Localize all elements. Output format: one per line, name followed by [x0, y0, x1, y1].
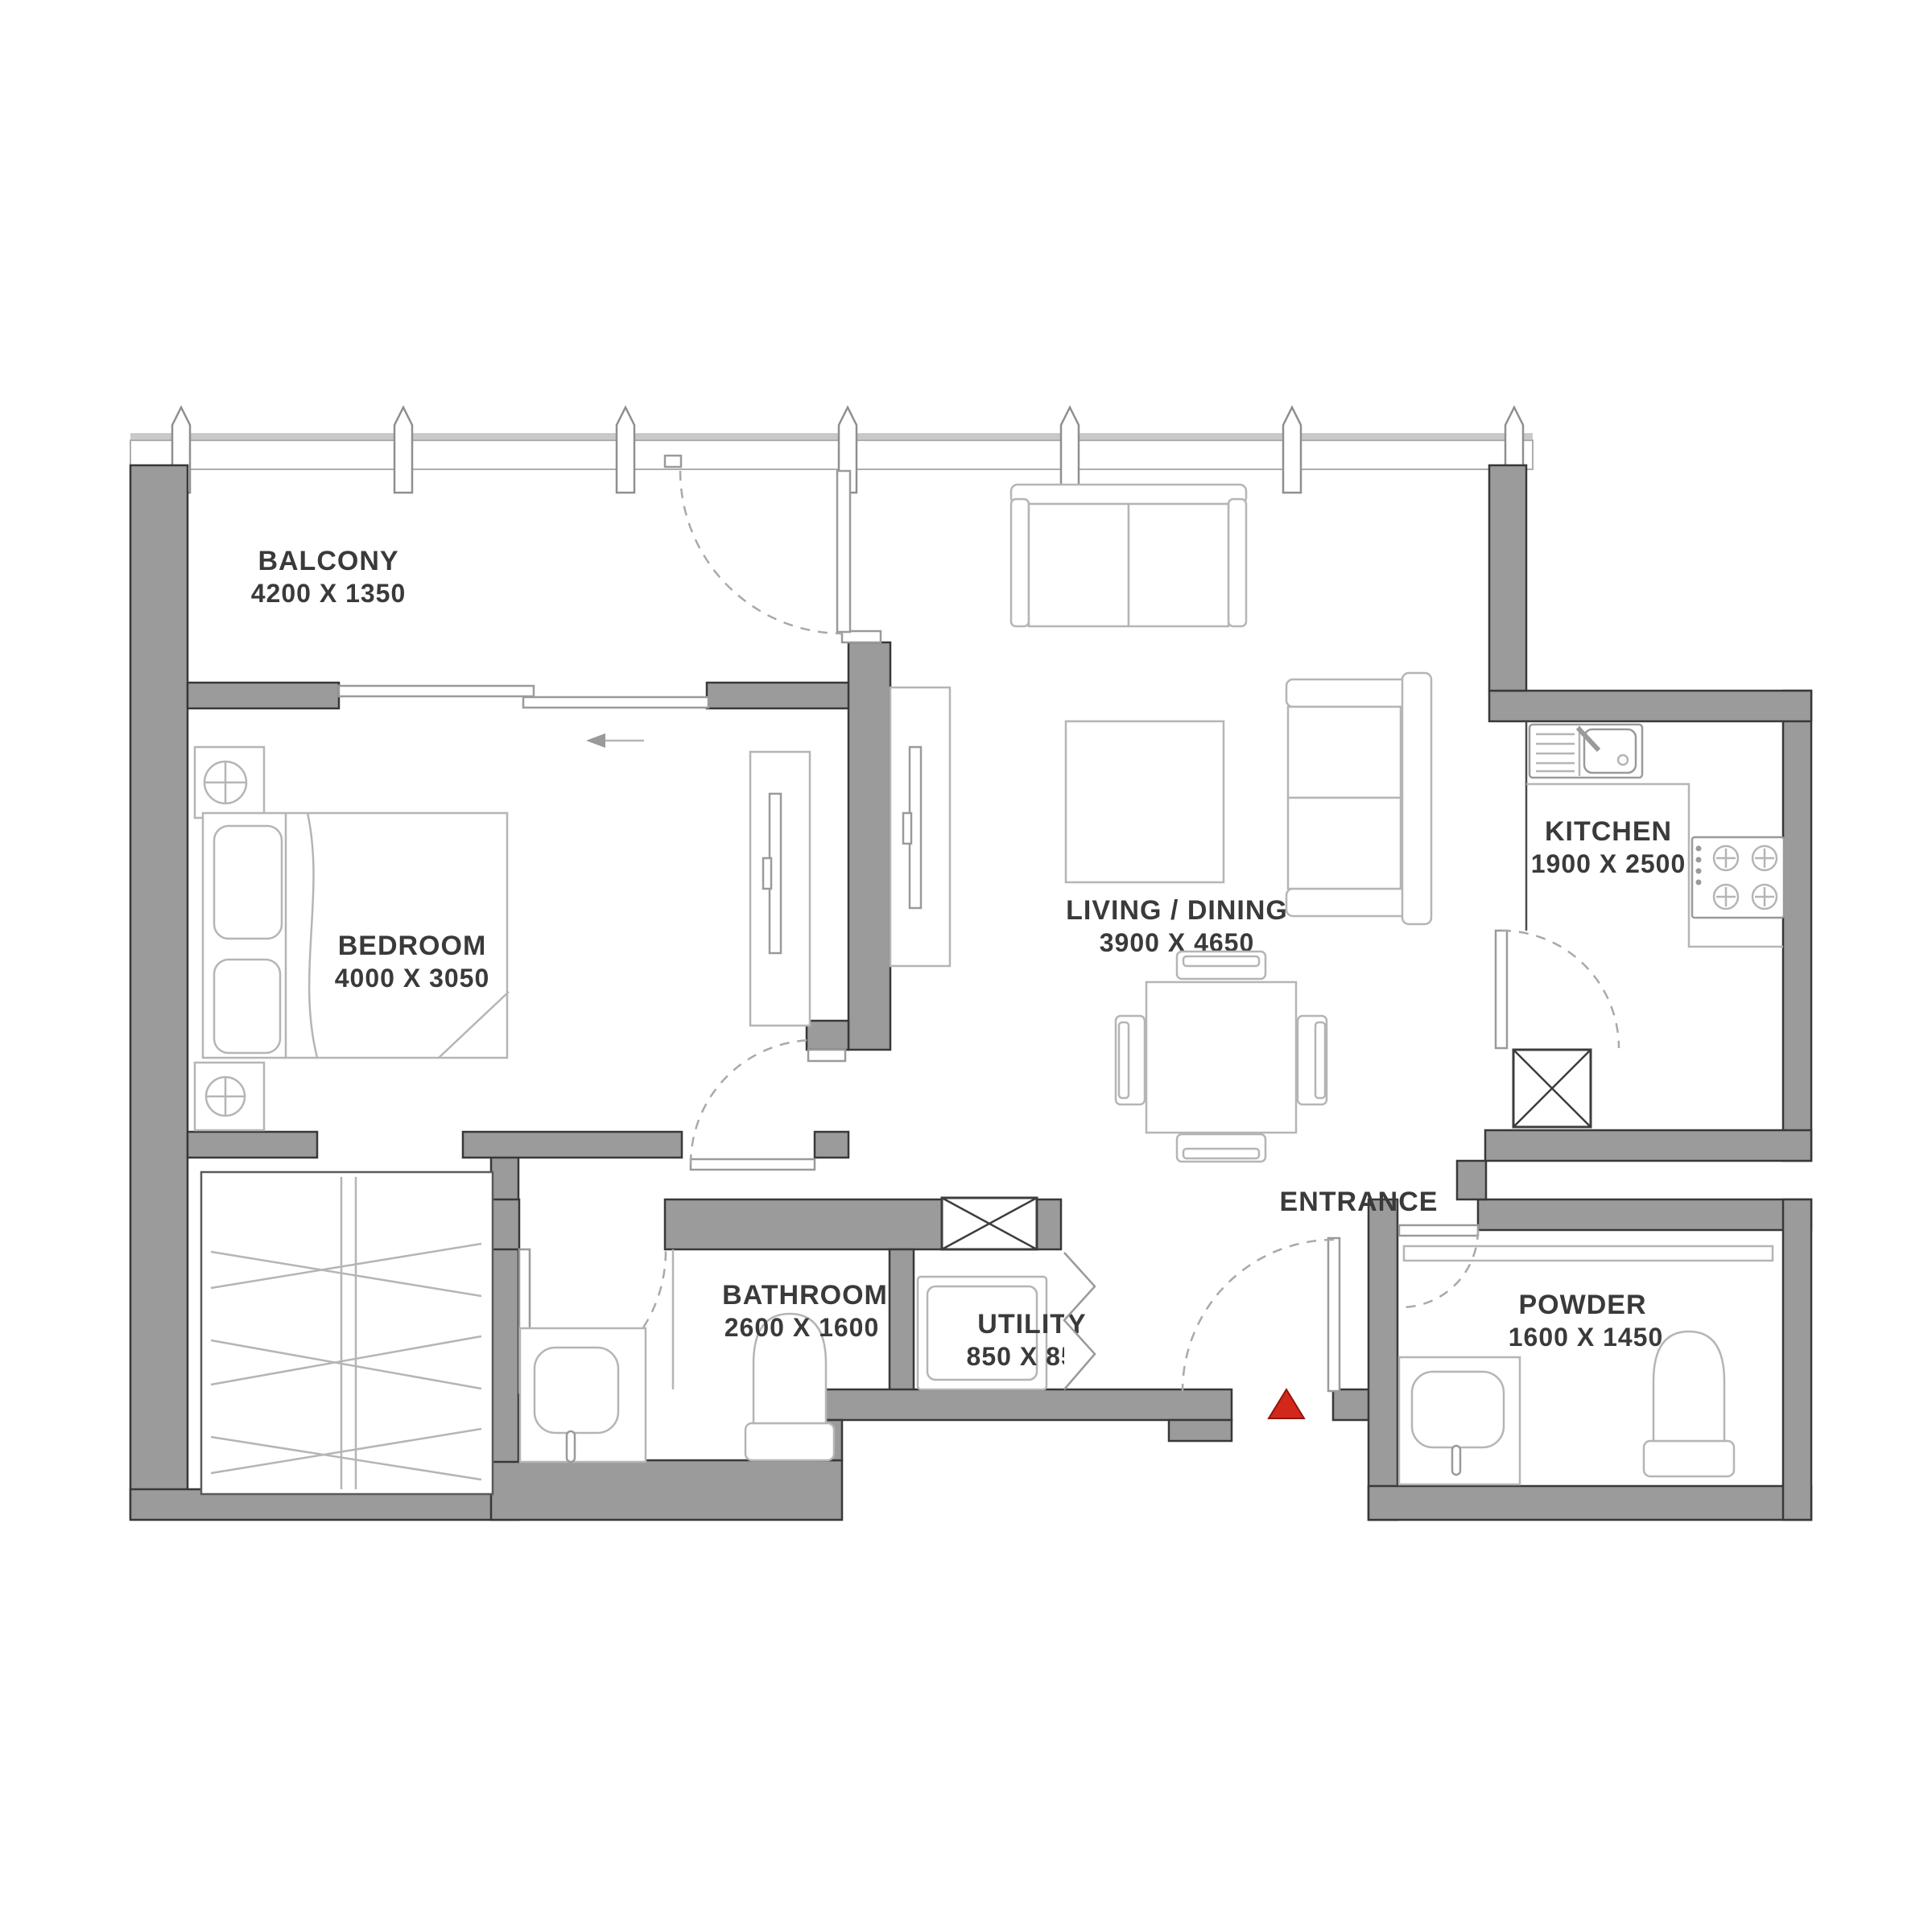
living-dining-label: LIVING / DINING: [1066, 895, 1288, 926]
tap-icon: [567, 1431, 575, 1462]
wall-segment: [1783, 691, 1811, 1161]
door-arc: [680, 471, 843, 634]
sofa-cushion: [1029, 504, 1129, 626]
powder-dimensions: 1600 X 1450: [1509, 1323, 1664, 1352]
sofa-back: [1011, 485, 1246, 504]
sofa-back: [1402, 673, 1431, 924]
sofa-cushion: [1288, 798, 1401, 889]
entrance-label: ENTRANCE: [1280, 1187, 1439, 1217]
nightstand-icon: [195, 747, 264, 818]
powder-label: POWDER: [1519, 1290, 1647, 1320]
shaft-icon: [942, 1198, 1037, 1249]
door-arc: [691, 1040, 815, 1164]
wall-segment: [188, 1132, 317, 1158]
tap-icon: [1452, 1446, 1460, 1475]
door-leaf: [1328, 1238, 1340, 1391]
entrance-door-swing-icon: [1183, 1238, 1340, 1391]
kitchen-label: KITCHEN: [1545, 816, 1672, 847]
wall-segment: [491, 1199, 519, 1249]
sofa-arm: [1011, 499, 1029, 626]
wall-segment: [1478, 1199, 1811, 1230]
wardrobe-box: [201, 1172, 493, 1494]
tv-unit-icon: [750, 752, 810, 1026]
wall-segment: [707, 683, 850, 708]
wall-segment: [815, 1132, 848, 1158]
dining-table: [1146, 982, 1296, 1133]
wall-segment: [1489, 465, 1526, 691]
door-arc: [1183, 1240, 1334, 1391]
dining-chair-back: [1119, 1022, 1129, 1098]
toilet-tank: [1644, 1441, 1734, 1476]
tv-bracket: [903, 813, 911, 844]
rug-icon: [1066, 721, 1224, 882]
room-living-dining: LIVING / DINING 3900 X 4650: [890, 485, 1431, 1162]
room-bathroom: BATHROOM 2600 X 1600: [519, 1249, 888, 1462]
room-kitchen: KITCHEN 1900 X 2500: [1496, 721, 1784, 1048]
powder-door-swing-icon: [1399, 1225, 1478, 1307]
wall-segment: [813, 1389, 1232, 1420]
stove-knob: [1696, 846, 1702, 852]
nightstand-icon: [195, 1063, 264, 1130]
balcony-railing: [130, 407, 1533, 493]
door-threshold: [665, 456, 681, 467]
wall-segment: [1783, 1199, 1811, 1520]
wardrobe-icon: [201, 1172, 493, 1494]
toilet-bowl: [1653, 1331, 1724, 1441]
dining-chair-back: [1183, 956, 1259, 966]
door-threshold: [808, 1050, 845, 1061]
kitchen-sink-icon: [1529, 724, 1642, 778]
door-arc: [1401, 1230, 1478, 1307]
sliding-panel: [523, 697, 708, 708]
door-leaf: [837, 471, 850, 632]
wall-segment: [1457, 1161, 1486, 1199]
sofa-arm: [1286, 679, 1409, 707]
wall-segment: [1485, 1130, 1811, 1161]
railing-band: [130, 440, 1533, 469]
sink-icon: [1399, 1357, 1520, 1484]
sliding-panel: [339, 686, 534, 696]
bathroom-label: BATHROOM: [722, 1280, 888, 1311]
slide-arrowhead: [586, 733, 605, 748]
wall-segment: [890, 1249, 914, 1391]
tv-unit-icon: [890, 687, 950, 966]
toilet-icon: [1644, 1331, 1734, 1476]
balcony-door-swing-icon: [680, 471, 850, 634]
sofa-icon: [1011, 485, 1246, 626]
kitchen-door-swing-icon: [1496, 931, 1619, 1048]
floor-plan: BALCONY 4200 X 1350: [0, 0, 1932, 1932]
wall-segment: [463, 1132, 682, 1158]
wall-segment: [130, 465, 188, 1518]
sofa-cushion: [1129, 504, 1228, 626]
door-leaf: [1496, 931, 1507, 1048]
dining-chair-back: [1183, 1149, 1259, 1158]
railing-post-icon: [617, 407, 634, 493]
pillow: [214, 826, 282, 939]
stove-knob: [1696, 869, 1702, 874]
sink-icon: [520, 1328, 646, 1462]
loveseat-icon: [1286, 673, 1431, 924]
wall-segment: [848, 642, 890, 1050]
balcony-dimensions: 4200 X 1350: [251, 579, 407, 608]
bedroom-door-swing-icon: [691, 1040, 815, 1170]
sofa-arm: [1286, 889, 1409, 916]
entrance-marker-icon: [1269, 1389, 1304, 1418]
wash-basin: [1412, 1372, 1504, 1447]
door-arc: [1501, 931, 1619, 1048]
stove-knob: [1696, 857, 1702, 863]
railing-post-icon: [394, 407, 412, 493]
sofa-arm: [1228, 499, 1246, 626]
balcony-label: BALCONY: [258, 546, 398, 576]
stove-body: [1692, 837, 1784, 918]
toilet-tank: [745, 1423, 834, 1460]
wall-segment: [491, 1460, 842, 1520]
wall-segment: [807, 1021, 848, 1050]
pillow: [214, 960, 280, 1053]
wall-segment: [1489, 691, 1811, 721]
sofa-cushion: [1288, 707, 1401, 798]
stove-knob: [1696, 880, 1702, 885]
wall-segment: [1368, 1199, 1397, 1520]
wall-segment: [1368, 1486, 1811, 1520]
stove-icon: [1692, 837, 1784, 918]
bedroom-dimensions: 4000 X 3050: [335, 964, 490, 993]
door-leaf: [1399, 1225, 1478, 1236]
dining-chair-back: [1315, 1022, 1325, 1098]
wall-segment: [1333, 1389, 1370, 1420]
railing-post-icon: [1283, 407, 1301, 493]
shaft-icon: [1513, 1050, 1591, 1127]
powder-shelf: [1404, 1246, 1773, 1261]
room-bedroom: BEDROOM 4000 X 3050: [195, 747, 815, 1170]
tv-bracket: [763, 858, 771, 889]
bedroom-label: BEDROOM: [338, 931, 487, 961]
wall-segment: [188, 683, 339, 708]
railing-post-icon: [1061, 407, 1079, 493]
room-utility: UTILITY 850 X 850: [918, 1253, 1095, 1389]
sliding-door-icon: [339, 686, 708, 748]
dining-set-icon: [1116, 952, 1327, 1162]
room-powder: POWDER 1600 X 1450: [1399, 1225, 1773, 1484]
kitchen-dimensions: 1900 X 2500: [1531, 849, 1686, 878]
door-leaf: [691, 1159, 815, 1170]
wash-basin: [535, 1348, 618, 1433]
bathroom-dimensions: 2600 X 1600: [724, 1313, 880, 1342]
railing-top-line: [130, 433, 1533, 440]
wall-segment: [1169, 1420, 1232, 1441]
sink-basin: [1584, 729, 1636, 773]
